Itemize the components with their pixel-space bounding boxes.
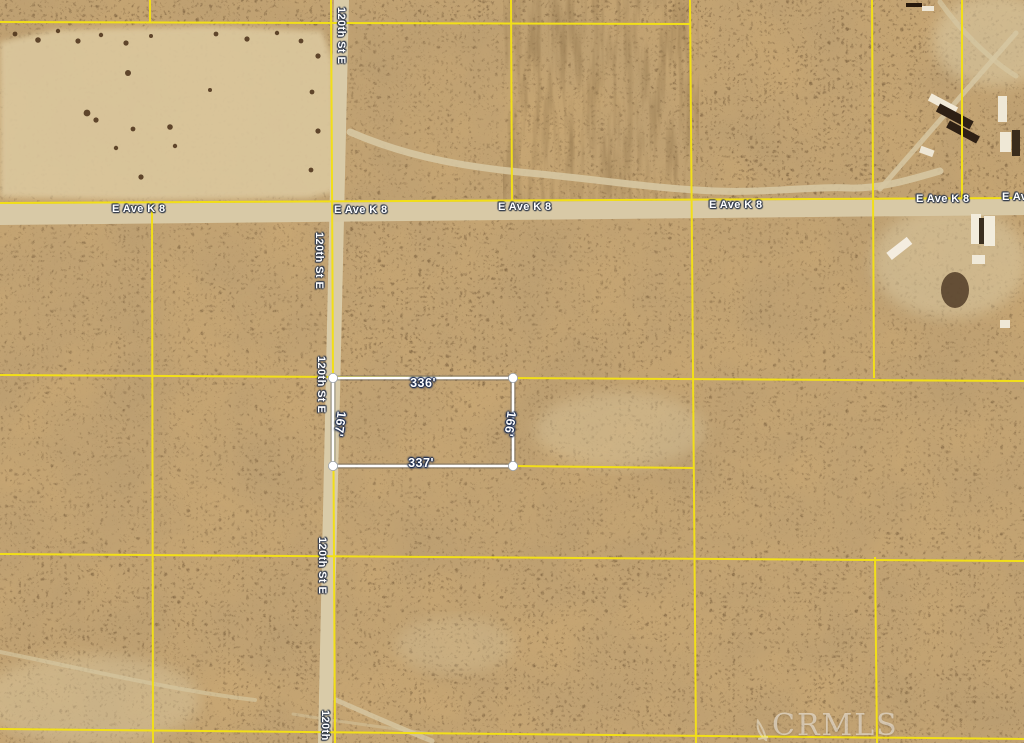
street-label-avek8-3: E Ave K 8	[498, 201, 552, 214]
street-label-120th-4: 120th St E	[315, 537, 328, 594]
parcel-dim-top: 336'	[410, 376, 436, 390]
satellite-terrain	[0, 0, 1024, 743]
satellite-parcel-map: 120th St E 120th St E 120th St E 120th S…	[0, 0, 1024, 743]
street-label-120th-5: 120th St E	[318, 710, 331, 743]
street-label-120th-2: 120th St E	[312, 232, 325, 289]
street-label-120th-1: 120th St E	[334, 7, 347, 64]
street-label-avek8-4: E Ave K 8	[709, 199, 763, 212]
parcel-dim-bottom: 337'	[408, 456, 434, 470]
street-label-avek8-6: E Ave K 8	[1002, 191, 1024, 204]
street-label-avek8-5: E Ave K 8	[916, 193, 970, 206]
crmls-watermark: CRMLS	[752, 708, 899, 743]
street-label-120th-3: 120th St E	[314, 356, 327, 413]
street-label-avek8-1: E Ave K 8	[112, 203, 166, 216]
crmls-watermark-text: CRMLS	[772, 708, 899, 743]
cleared-field	[0, 26, 336, 200]
crmls-leaf-icon	[752, 715, 770, 741]
street-label-avek8-2: E Ave K 8	[334, 204, 388, 217]
